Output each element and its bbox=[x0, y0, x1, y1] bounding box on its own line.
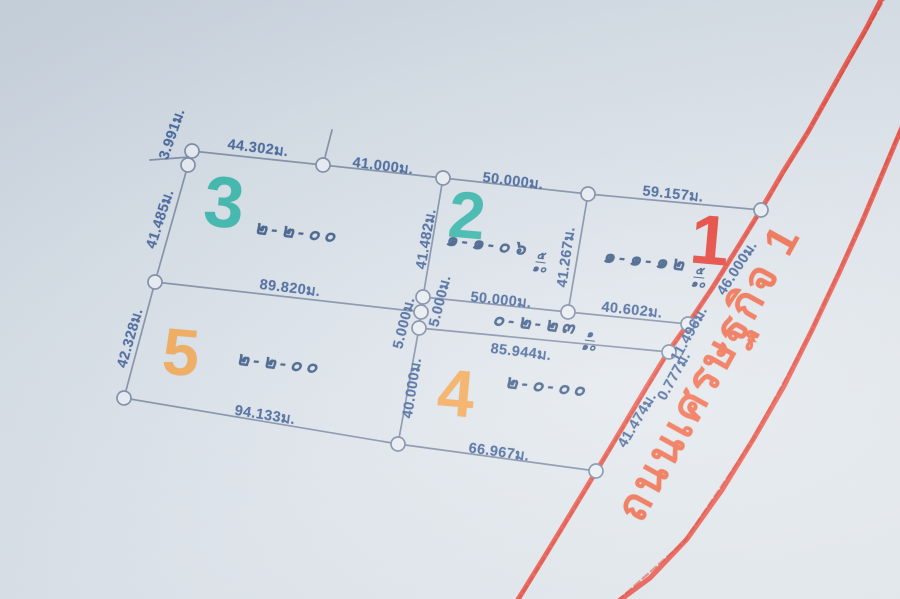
plot-1-area-fraction: ๕๑๐ bbox=[690, 264, 708, 291]
vertex-marker bbox=[581, 187, 595, 201]
vertex-marker bbox=[185, 144, 199, 158]
plot-1-area-text: ๑-๑-๑๒ bbox=[602, 246, 689, 276]
vertex-marker bbox=[316, 158, 330, 172]
vertex-marker bbox=[391, 437, 405, 451]
plot-3-area-text: ๒-๒-๐๐ bbox=[254, 218, 341, 248]
plot-5-number: 5 bbox=[160, 318, 202, 387]
plot-2-area-fraction: ๕๑๐ bbox=[532, 249, 550, 276]
survey-plan-page: 3.991ม. 44.302ม. 41.000ม. 50.000ม. 59.15… bbox=[0, 0, 900, 599]
plot-4-number: 4 bbox=[435, 359, 477, 428]
strip-area-fraction: ๑๑๐ bbox=[581, 327, 599, 354]
vertex-marker bbox=[117, 391, 131, 405]
vertex-marker bbox=[436, 171, 450, 185]
strip-area-text: ๐-๒-๒๓ bbox=[491, 309, 579, 339]
plot-2-area-text: ๑-๑-๐๖ bbox=[444, 229, 530, 260]
vertex-marker bbox=[181, 158, 195, 172]
vertex-marker bbox=[148, 275, 162, 289]
plot-5-area-text: ๒-๒-๐๐ bbox=[236, 349, 323, 379]
vertex-marker bbox=[589, 464, 603, 478]
plot-3-number: 3 bbox=[201, 165, 247, 240]
plot-4-area-text: ๒-๐-๐๐ bbox=[504, 372, 590, 402]
